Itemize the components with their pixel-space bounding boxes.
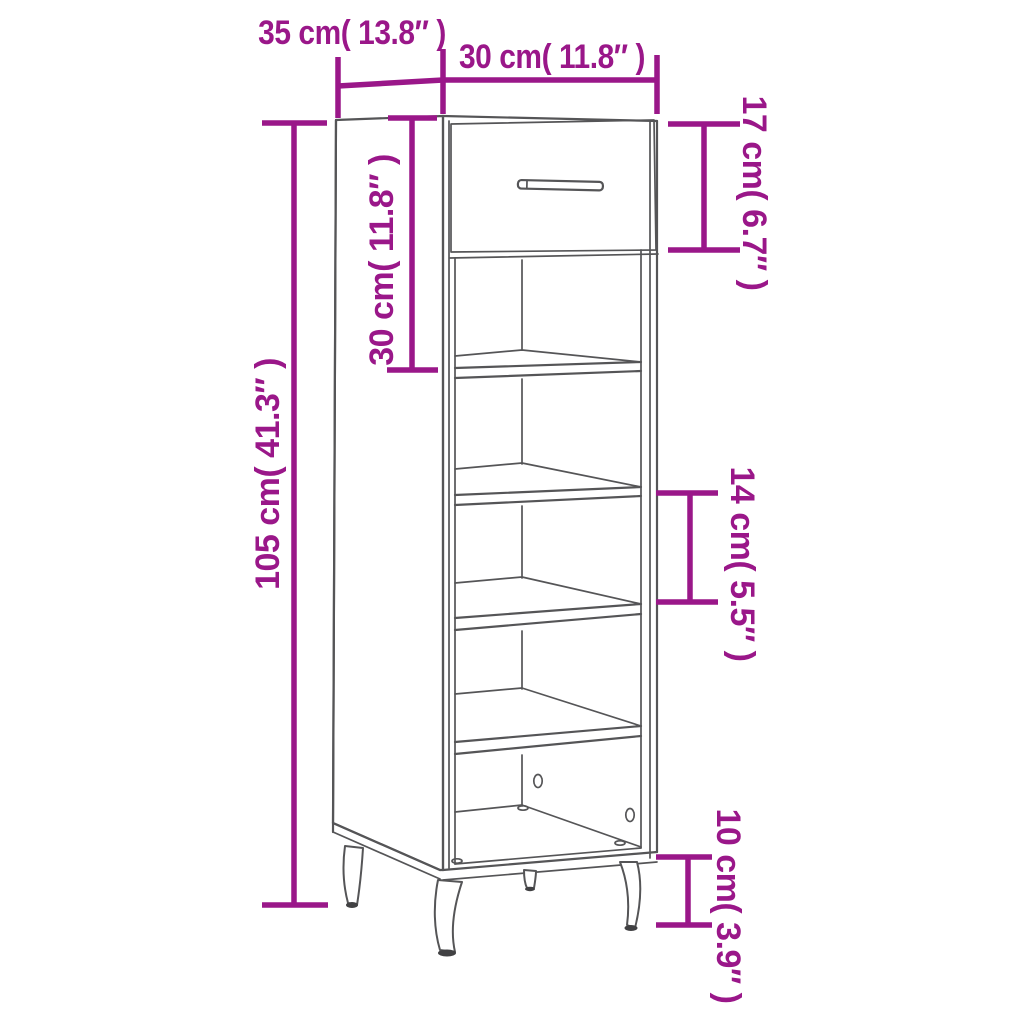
back-panel-hole [534,775,542,788]
leg-back-right [524,870,536,891]
dimension-width: 30 cm( 11.8″ ) [443,37,657,114]
shelf-gap-label: 14 cm( 5.5″ ) [723,467,761,662]
cabinet-legs [344,846,641,957]
depth-label: 35 cm( 13.8″ ) [258,13,446,51]
dimension-line [338,80,443,86]
back-panel-hole [626,809,634,822]
cabinet-dimension-drawing: 35 cm( 13.8″ ) 30 cm( 11.8″ ) 17 cm( 6.7… [0,0,1024,1024]
shelf-1 [455,350,641,378]
leg-back-left [344,846,363,908]
shelf-4 [455,688,641,754]
front-frame [443,116,657,880]
drawer [450,120,658,258]
leg-front-left [435,880,462,957]
dimension-depth: 35 cm( 13.8″ ) [258,13,446,118]
shelf-3 [455,577,641,630]
leg-foot [525,887,535,891]
screw-hole [615,841,625,845]
dimension-diagram: 35 cm( 13.8″ ) 30 cm( 11.8″ ) 17 cm( 6.7… [0,0,1024,1024]
drawer-handle [518,180,603,190]
leg-foot [625,925,638,931]
leg-foot [346,902,358,908]
dimension-shelf-gap: 14 cm( 5.5″ ) [656,467,761,662]
dimension-drawer-height: 17 cm( 6.7″ ) [668,96,773,291]
width-label: 30 cm( 11.8″ ) [459,37,645,75]
leg-height-label: 10 cm( 3.9″ ) [709,809,747,1004]
screw-hole [452,859,462,863]
total-height-label: 105 cm( 41.3″ ) [249,358,287,590]
screw-hole [518,806,528,810]
leg-foot [438,950,456,957]
dimension-total-height: 105 cm( 41.3″ ) [249,123,328,905]
drawer-height-label: 17 cm( 6.7″ ) [735,96,773,291]
shelf-2 [455,463,641,505]
dimension-leg-height: 10 cm( 3.9″ ) [656,809,747,1004]
upper-section-label: 30 cm( 11.8″ ) [363,154,401,366]
leg-front-right [620,862,640,931]
